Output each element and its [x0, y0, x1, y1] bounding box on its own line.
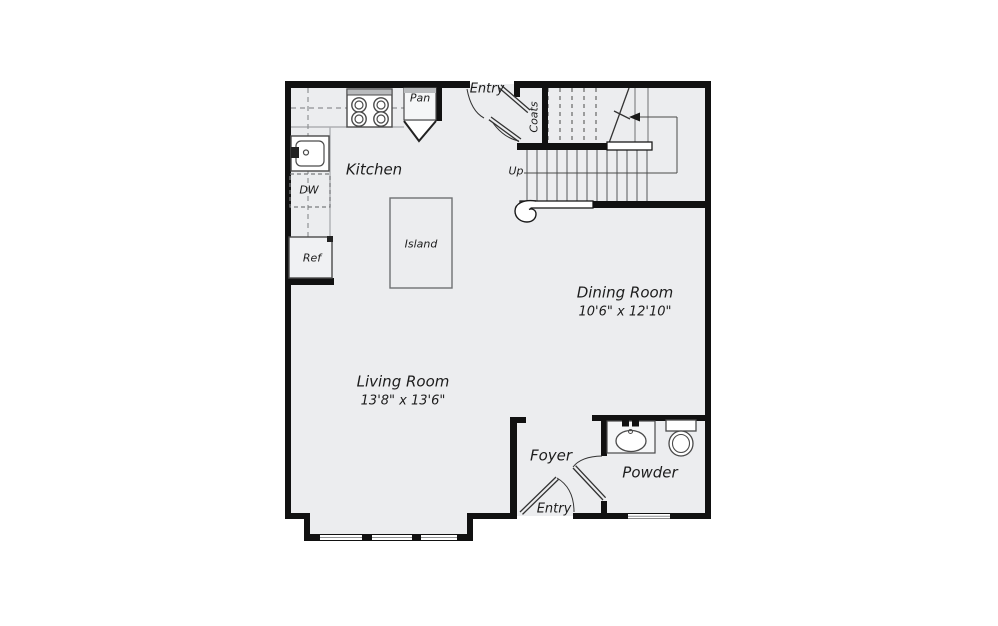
stairs-up-label: Up [508, 166, 523, 177]
dining-room-label: Dining Room [577, 286, 674, 301]
living-room-label: Living Room [357, 375, 450, 390]
refrigerator-label: Ref [303, 253, 321, 264]
living-room-dimensions: 13'8" x 13'6" [361, 395, 446, 408]
dining-room-dimensions: 10'6" x 12'10" [579, 306, 672, 319]
entry-top-label: Entry [470, 83, 505, 96]
pantry-label: Pan [410, 93, 430, 104]
kitchen-label: Kitchen [346, 163, 402, 178]
stove-icon [347, 89, 392, 127]
foyer-label: Foyer [530, 449, 572, 464]
toilet-icon [666, 420, 696, 456]
coats-label: Coats [529, 101, 540, 132]
vanity-sink-icon [607, 420, 655, 454]
powder-window [628, 514, 670, 519]
bay-window [320, 535, 457, 540]
entry-bottom-label: Entry [537, 503, 572, 516]
floor-plan-page: Kitchen Island Pan DW Ref Entry Coats Up… [0, 0, 998, 626]
powder-label: Powder [622, 466, 677, 481]
island-label: Island [405, 239, 438, 250]
dishwasher-label: DW [299, 185, 318, 196]
kitchen-sink-icon [291, 136, 329, 171]
